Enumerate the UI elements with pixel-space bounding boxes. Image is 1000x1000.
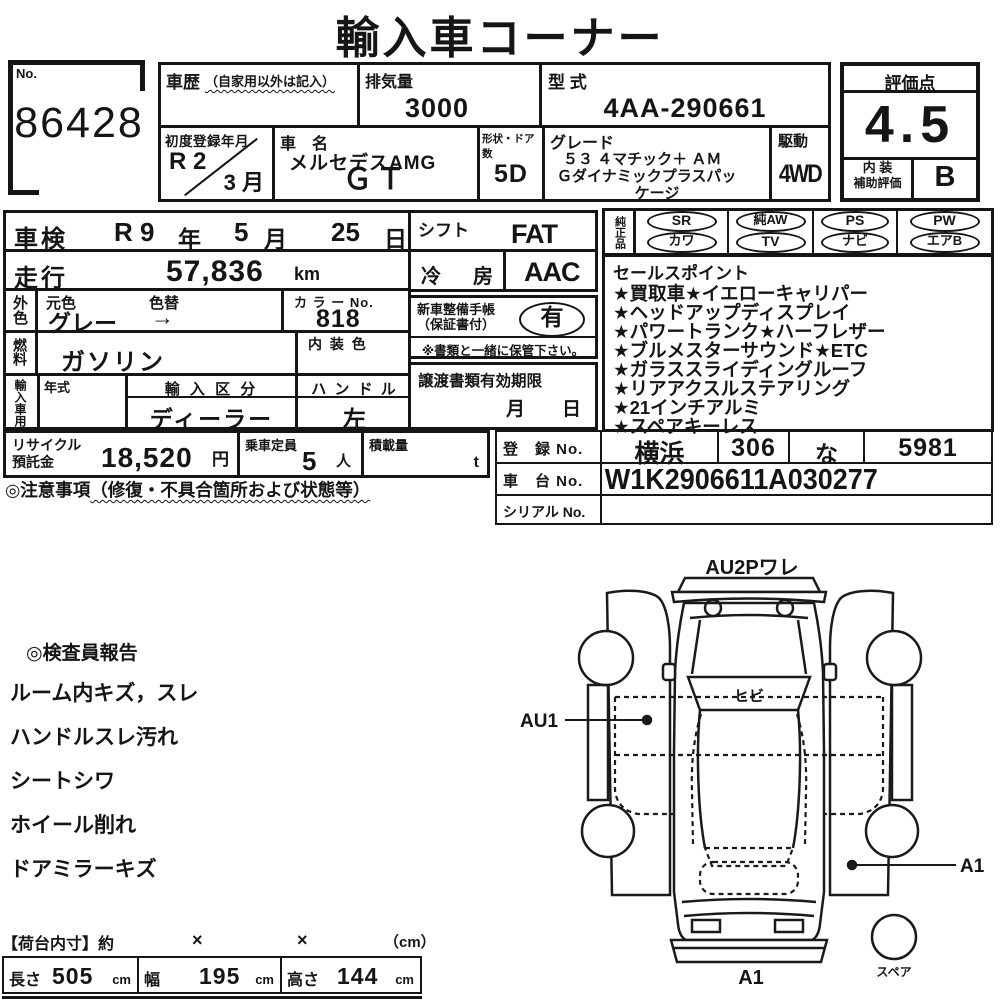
mileage-row: 走行 57,836 km [3,249,411,291]
registration-label: 登 録 No. [497,432,602,462]
handle-label: ハ ン ド ル [298,376,411,398]
grade-line3: ケージ [545,182,769,203]
doors-label: 形状・ドア数 [482,131,542,161]
genuine-parts-grid: SR 純AW PS PW カワ TV ナビ エアB [636,211,991,253]
import-row: 輸入車用 年式 輸 入 区 分 ディーラー ハ ン ド ル 左 [3,373,411,430]
interior-color-label: 内 装 色 [308,334,368,354]
first-registration-era: R 2 [169,148,206,176]
capacity-label: 乗車定員 [245,435,297,454]
sales-point-item: ★パワートランク★ハーフレザー [613,322,983,341]
genuine-sr: SR [647,211,717,232]
wheel-rear-right [866,805,918,857]
fuel-row: 燃料 ガソリン 内 装 色 [3,330,411,376]
history-note: （自家用以外は記入） [205,71,335,90]
auction-sheet: 輸入車コーナー No. 86428 車歴 （自家用以外は記入） 排気量 3000… [0,0,1000,1000]
genuine-navi: ナビ [821,232,889,253]
import-division-value: ディーラー [128,400,295,434]
chassis-row: 車 台 No. W1K2906611A030277 [495,462,993,496]
sales-points-box: セールスポイント ★買取車★イエローキャリパー ★ヘッドアップディスプレイ ★パ… [602,254,994,432]
capacity-box: 乗車定員 5 人 [237,430,364,478]
mileage-value: 57,836 [166,255,264,289]
corner-tick-bottom-left [13,190,39,195]
shaken-month: 5 [234,217,248,248]
serial-value [602,496,991,523]
load-box: 積載量 t [361,430,490,478]
wheel-front-left [579,631,633,685]
history-box: 車歴 （自家用以外は記入） [158,62,360,128]
notes-heading: ◎注意事項（修復・不具合箇所および状態等） [5,477,370,502]
cutoff-box-edge [2,996,422,999]
cargo-header: 【荷台内寸】約 × × （cm） [2,930,432,954]
model-code-label: 型 式 [548,68,587,93]
model-code-value: 4AA-290661 [542,93,828,124]
import-label: 輸入車用 [14,379,26,427]
sales-point-item: ★ヘッドアップディスプレイ [613,303,983,322]
doors-box: 形状・ドア数 5D [477,125,545,202]
import-year-label: 年式 [44,377,70,396]
grade-box: グレード ５３ ４マチック＋ ＡＭ Ｇダイナミックプラスパッ ケージ [542,125,772,202]
history-label: 車歴 [166,68,200,93]
import-division-label: 輸 入 区 分 [128,376,295,398]
damage-label-rear: A1 [738,967,764,989]
first-registration-month: 3 月 [224,165,264,197]
displacement-value: 3000 [405,93,469,124]
rear-bumper [671,940,827,962]
service-book-note: ※書類と一緒に保管下さい。 [411,336,595,356]
wheel-front-right [867,631,921,685]
drive-value: 4WD [776,160,824,189]
genuine-parts-box: 純正品 SR 純AW PS PW カワ TV ナビ エアB [602,208,994,256]
registration-kana: な [790,432,865,462]
lot-number-box: No. 86428 [8,60,145,195]
cargo-width-box: 幅 195 cm [137,956,282,994]
serial-row: シリアル No. [495,494,993,525]
inspector-item: シートシワ [10,765,198,795]
shaken-era: R 9 [114,217,154,248]
capacity-value: 5 [302,446,317,477]
damage-diagram: AU2Pワレ ヒビ AU1 A1 A1 スペア [508,552,992,1000]
doors-value: 5D [480,160,542,189]
handle-value: 左 [298,400,411,434]
displacement-box: 排気量 3000 [357,62,542,128]
front-bumper [678,578,820,592]
ac-value: AAC [524,257,580,288]
service-book-box: 新車整備手帳 （保証書付） 有 ※書類と一緒に保管下さい。 [408,295,598,359]
wheel-rear-left [582,805,634,857]
lot-number-value: 86428 [13,99,145,148]
registration-class: 306 [719,432,790,462]
sales-point-item: ★ガラススライディングルーフ [613,360,983,379]
inspector-item: ホイール削れ [10,809,198,839]
genuine-kawa: カワ [647,232,717,253]
car-body [674,603,824,940]
recycle-unit: 円 [212,445,229,470]
genuine-parts-label-cell: 純正品 [605,211,636,253]
spare-wheel [872,915,916,959]
inspector-report: ◎検査員報告 ルーム内キズ，スレ ハンドルスレ汚れ シートシワ ホイール削れ ド… [10,638,198,883]
chassis-label: 車 台 No. [497,464,602,494]
score-value: 4.5 [844,93,976,160]
displacement-label: 排気量 [365,68,413,92]
shift-value: FAT [511,219,557,250]
score-label: 評価点 [844,66,976,93]
service-book-label: 新車整備手帳 （保証書付） [417,302,495,332]
registration-region: 横浜 [602,432,719,462]
cargo-length-value: 505 [52,963,93,990]
mirror-right [824,664,836,680]
spare-label: スペア [876,965,911,979]
recycle-value: 18,520 [101,442,193,474]
first-registration-box: 初度登録年月 R 2 3 月 [158,125,275,202]
recycle-deposit-box: リサイクル 預託金 18,520 円 [3,430,240,478]
interior-score-value: B [914,160,976,198]
genuine-pw: PW [910,211,980,232]
shift-box: シフト FAT [408,210,598,252]
inspector-item: ハンドルスレ汚れ [10,721,198,751]
car-name-box: 車 名 メルセデスAMG ＧＴ [272,125,480,202]
color-change-arrow: → [151,304,174,331]
corner-tick-top-right [140,65,145,91]
genuine-parts-label: 純正品 [614,216,625,249]
front-lip [672,592,826,602]
exterior-color-label: 外色 [12,295,27,325]
exterior-color-row: 外色 元色 色替 グレー → カ ラ ー No. 818 [3,288,411,333]
fuel-value: ガソリン [61,342,165,377]
left-sill [588,685,608,800]
transfer-docs-day: 日 [562,394,581,421]
transfer-docs-month: 月 [506,394,525,421]
chassis-value: W1K2906611A030277 [602,464,964,494]
recycle-label: リサイクル [12,437,81,454]
car-name-line2: ＧＴ [275,156,477,198]
transfer-docs-label: 譲渡書類有効期限 [418,369,542,391]
service-book-value: 有 [519,302,585,337]
right-sill [892,685,912,800]
ac-label: 冷 房 [421,260,499,289]
cargo-height-box: 高さ 144 cm [280,956,422,994]
genuine-ps: PS [821,211,889,232]
registration-number: 5981 [865,432,991,462]
sales-point-item: ★21インチアルミ [613,398,983,417]
score-box: 評価点 4.5 内 装 補助評価 B [840,62,980,202]
damage-label-front: AU2Pワレ [705,557,798,579]
transfer-docs-box: 譲渡書類有効期限 月 日 [408,362,598,430]
inspector-report-title: ◎検査員報告 [26,638,198,665]
au1-pointer-dot [643,716,651,724]
genuine-aw: 純AW [736,211,806,232]
cargo-width-value: 195 [199,963,240,990]
registration-table: 登 録 No. 横浜 306 な 5981 車 台 No. W1K2906611… [495,430,993,525]
mileage-unit: km [294,264,320,285]
drive-label: 駆動 [778,130,808,151]
drive-box: 駆動 4WD [769,125,831,202]
shaken-day: 25 [331,217,360,248]
sales-point-item: ★買取車★イエローキャリパー [613,284,983,303]
sales-point-item: ★ブルメスターサウンド★ETC [613,341,983,360]
genuine-airbag: エアB [910,232,980,253]
genuine-tv: TV [736,232,806,253]
first-registration-label: 初度登録年月 [165,130,249,150]
load-label: 積載量 [369,435,408,454]
lot-number-label: No. [16,66,37,81]
mirror-left [663,664,675,680]
page-title: 輸入車コーナー [250,2,750,66]
damage-label-windshield: ヒビ [734,688,764,705]
damage-label-left: AU1 [520,711,558,732]
serial-label: シリアル No. [497,496,602,523]
a1-pointer-dot [848,861,856,869]
cargo-length-box: 長さ 505 cm [2,956,139,994]
inspector-item: ドアミラーキズ [10,853,198,883]
interior-score-row: 内 装 補助評価 B [844,160,976,198]
inspector-item: ルーム内キズ，スレ [10,677,198,707]
shaken-row: 車検 R 9 年 5 月 25 日 [3,210,411,252]
cargo-height-value: 144 [337,963,378,990]
model-code-box: 型 式 4AA-290661 [539,62,831,128]
shift-label: シフト [418,216,469,241]
interior-score-label: 内 装 補助評価 [844,160,914,198]
fuel-label: 燃料 [13,338,27,366]
registration-row: 登 録 No. 横浜 306 な 5981 [495,430,993,464]
damage-label-right: A1 [960,856,985,877]
sales-point-item: ★リアアクスルステアリング [613,379,983,398]
ac-box: 冷 房 AAC [408,249,598,292]
sales-points-title: セールスポイント [613,259,983,284]
